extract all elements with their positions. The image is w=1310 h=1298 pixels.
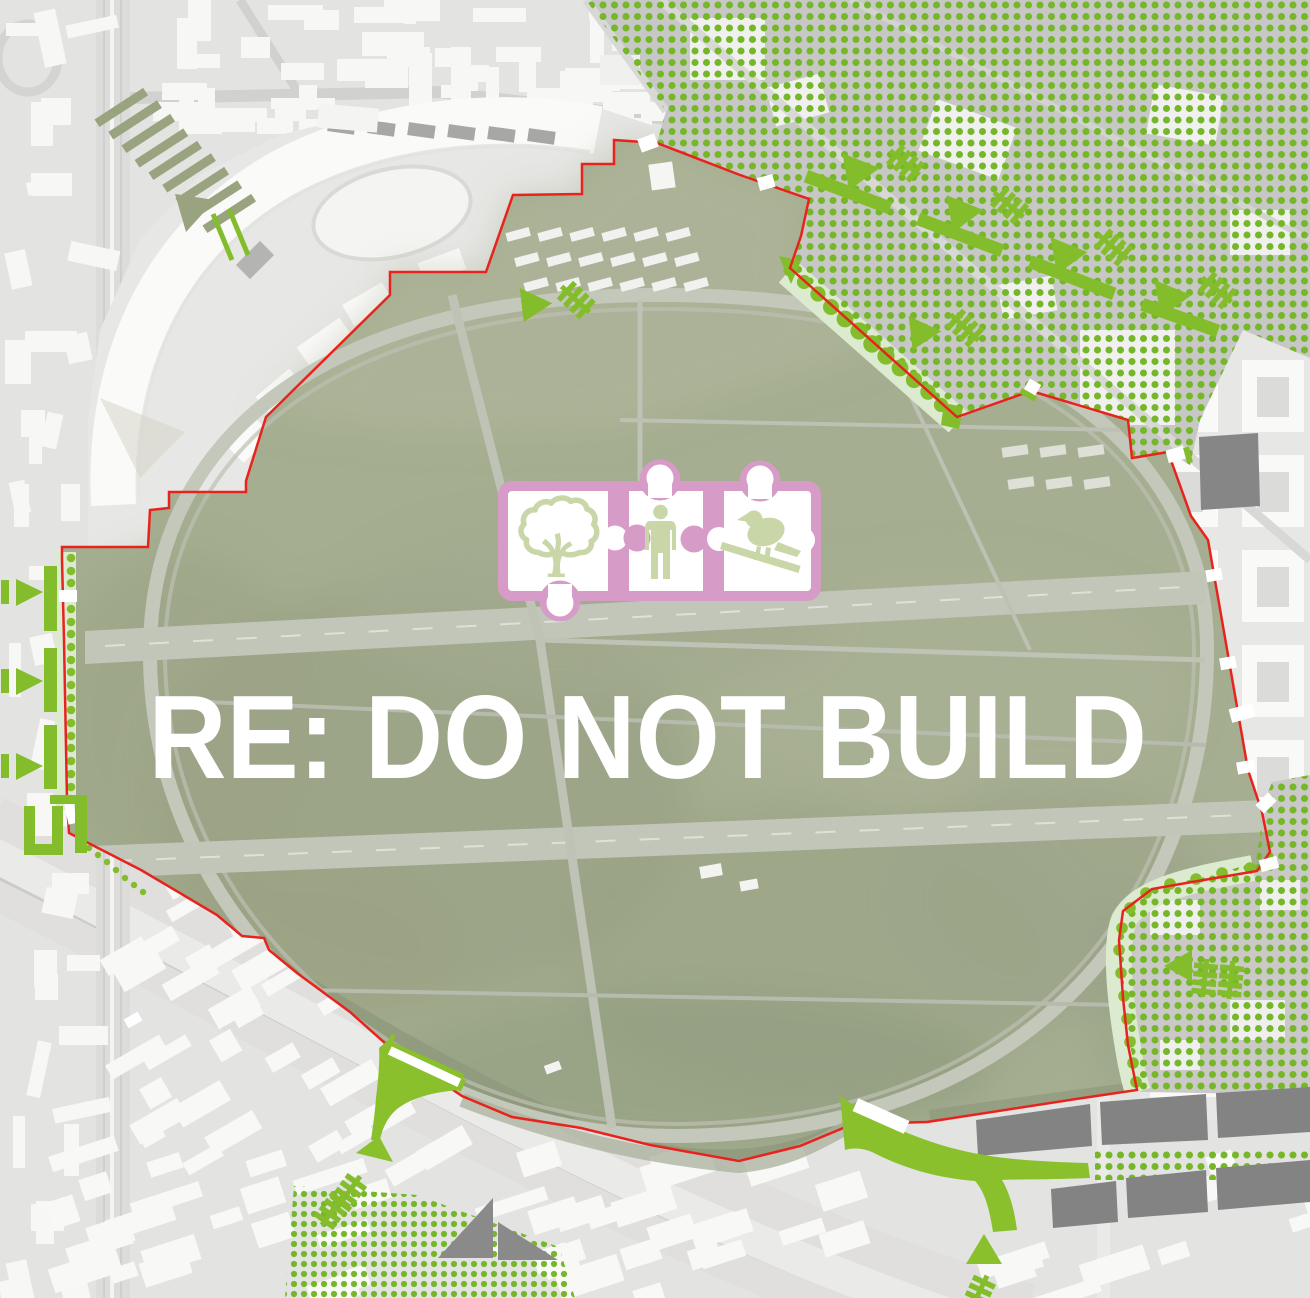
svg-text:RE: DO NOT BUILD: RE: DO NOT BUILD: [148, 671, 1147, 804]
